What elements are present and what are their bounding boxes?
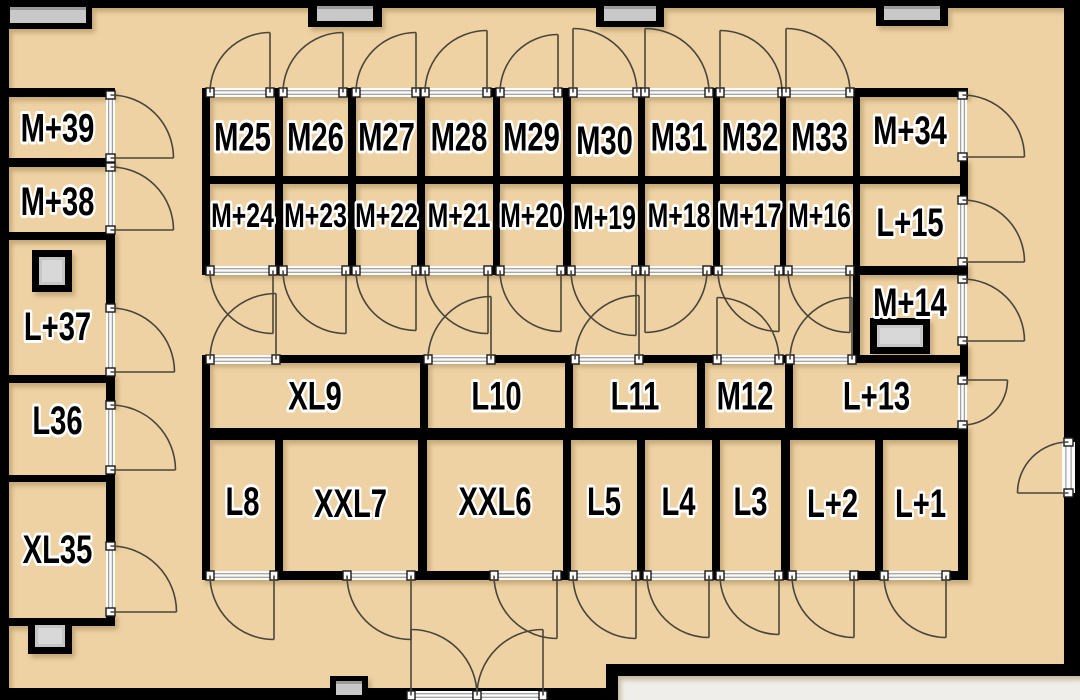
wall [781,440,790,580]
unit-label-text: L5 [587,480,621,525]
door-threshold [210,88,270,97]
wall [638,88,645,275]
wall [9,88,115,97]
unit-label-M+14: M+14 [873,281,947,326]
unit-label-L+15: L+15 [876,201,943,246]
unit-label-text: M+23 [284,197,347,235]
unit-label-M32: M32 [722,115,779,160]
unit-label-M27: M27 [358,115,415,160]
unit-label-M29: M29 [503,115,560,160]
wall [420,363,428,430]
door-threshold [425,266,488,275]
door-threshold [106,546,115,612]
wall [493,88,500,275]
wall [418,440,427,580]
unit-label-text: M31 [651,115,708,160]
unit-label-text: XXL6 [459,480,532,525]
unit-label-XXL7: XXL7 [314,482,387,527]
window-glass-edge [884,6,940,9]
wall [713,88,720,275]
floorplan: M25M26M27M28M29M30M31M32M33M+34M+24M+23M… [0,0,1080,700]
door-threshold [500,266,561,275]
unit-label-text: M+16 [788,197,851,235]
unit-label-M26: M26 [287,115,344,160]
wall [9,158,115,167]
unit-label-text: M+22 [355,197,418,235]
unit-label-text: M+19 [573,199,636,237]
unit-label-L+1: L+1 [895,482,946,527]
unit-label-text: L+2 [807,482,858,527]
unit-label-L4: L4 [661,480,696,525]
unit-label-M+24: M+24 [211,197,274,235]
door-threshold [718,266,779,275]
unit-label-text: M+17 [719,197,782,235]
wall [9,232,115,240]
door-threshold [411,691,477,700]
wall [565,363,573,430]
wall [853,88,860,275]
wall [606,664,1080,676]
unit-label-text: M33 [791,115,848,160]
door-threshold [356,88,416,97]
door-threshold [958,200,967,262]
unit-label-L10: L10 [471,374,521,419]
door-threshold [575,355,639,364]
door-threshold [283,88,343,97]
unit-label-text: L+1 [895,482,946,527]
unit-label-text: M+38 [21,180,95,225]
unit-label-L11: L11 [611,374,660,419]
wall [348,88,356,275]
door-threshold [720,88,782,97]
outside-areas [618,676,1080,700]
unit-label-text: XL35 [23,528,93,573]
door-threshold [1062,442,1075,493]
door-threshold [210,571,274,580]
unit-label-L5: L5 [587,480,621,525]
unit-label-text: L10 [471,374,521,419]
floorplan-svg: M25M26M27M28M29M30M31M32M33M+34M+24M+23M… [0,0,1080,700]
unit-label-L3: L3 [733,480,767,525]
unit-label-text: M+18 [648,197,711,235]
unit-label-M12: M12 [717,374,774,419]
door-threshold [477,691,543,700]
door-threshold [792,571,854,580]
unit-label-text: M+14 [873,281,947,326]
unit-label-M+20: M+20 [500,197,563,235]
unit-label-M31: M31 [651,115,708,160]
unit-label-M+17: M+17 [719,197,782,235]
unit-label-M25: M25 [214,115,271,160]
wall [202,440,210,580]
unit-label-M33: M33 [791,115,848,160]
wall [875,440,883,580]
unit-label-text: M26 [287,115,344,160]
door-threshold [571,266,636,275]
door-threshold [645,88,709,97]
door-threshold [717,355,779,364]
unit-label-M+22: M+22 [355,197,418,235]
unit-label-text: L8 [225,480,259,525]
unit-label-text: L+13 [843,374,910,419]
unit-label-text: L36 [32,399,82,444]
door-threshold [958,95,967,157]
door-threshold [106,405,115,470]
door-threshold [106,95,115,158]
unit-label-text: XL9 [288,374,342,419]
unit-label-M+34: M+34 [873,109,947,154]
wall [9,375,115,383]
unit-label-text: L3 [733,480,767,525]
door-threshold [283,266,346,275]
wall [202,428,968,440]
window-glass-edge [336,681,362,684]
unit-label-text: M+21 [428,197,491,235]
wall [275,88,283,275]
door-threshold [210,355,276,364]
door-threshold [106,308,115,372]
unit-label-text: M+20 [500,197,563,235]
wall [780,88,786,275]
unit-label-text: M30 [576,119,633,164]
door-threshold [425,88,487,97]
door-threshold [347,571,411,580]
wall [853,275,860,363]
window-glass-edge [604,6,656,9]
unit-label-M+38: M+38 [21,180,95,225]
unit-label-text: XXL7 [314,482,387,527]
door-threshold [210,266,273,275]
window-top-3 [596,0,664,27]
door-threshold [428,355,491,364]
door-threshold [106,167,115,230]
wall [106,230,115,308]
unit-label-text: M28 [431,115,488,160]
unit-label-L+13: L+13 [843,374,910,419]
unit-label-XL9: XL9 [288,374,342,419]
pillar-L37 [32,250,72,292]
wall [1064,0,1080,672]
pillar-highlight [880,328,920,344]
unit-label-M+16: M+16 [788,197,851,235]
unit-label-text: M+34 [873,109,947,154]
door-threshold [645,266,707,275]
pillar-highlight [42,260,62,282]
unit-label-text: M+39 [21,106,95,151]
unit-label-M+23: M+23 [284,197,347,235]
wall [712,440,720,580]
window-bottom-1 [330,676,368,700]
unit-label-text: M12 [717,374,774,419]
door-threshold [573,88,637,97]
unit-label-text: L+15 [876,201,943,246]
unit-label-XL35: XL35 [23,528,93,573]
unit-label-text: M+24 [211,197,274,235]
door-threshold [884,571,946,580]
unit-label-text: M25 [214,115,271,160]
wall [958,436,968,580]
wall [563,440,571,580]
unit-label-text: M27 [358,115,415,160]
door-threshold [720,571,779,580]
door-threshold [958,380,967,425]
window-glass-edge [317,6,373,9]
outside-area [618,676,1080,700]
wall [9,475,115,482]
door-threshold [500,88,558,97]
unit-label-L36: L36 [32,399,82,444]
unit-label-M30: M30 [576,119,633,164]
door-threshold [790,355,852,364]
wall [417,88,425,275]
unit-label-M28: M28 [431,115,488,160]
window-glass-edge [10,7,86,10]
unit-label-text: L11 [611,374,660,419]
wall [0,0,9,700]
window-top-2 [308,0,382,27]
unit-label-M+39: M+39 [21,106,95,151]
wall [785,363,793,430]
door-threshold [573,571,636,580]
wall [275,440,283,580]
unit-label-text: L4 [661,480,696,525]
door-threshold [356,266,416,275]
unit-label-L+37: L+37 [24,305,91,350]
pillar-XL35 [28,618,72,654]
unit-label-text: L+37 [24,305,91,350]
unit-label-text: M29 [503,115,560,160]
window-top-4 [876,0,948,26]
unit-label-text: M32 [722,115,779,160]
wall [637,440,645,580]
pillar-highlight [38,628,62,644]
unit-label-XXL6: XXL6 [459,480,532,525]
wall [106,470,115,547]
door-threshold [647,571,709,580]
unit-label-M+19: M+19 [573,199,636,237]
wall [697,363,705,430]
door-threshold [958,279,967,341]
door-threshold [494,571,557,580]
unit-label-L8: L8 [225,480,259,525]
door-threshold [786,88,850,97]
unit-label-M+18: M+18 [648,197,711,235]
unit-label-L+2: L+2 [807,482,858,527]
door-threshold [788,266,850,275]
unit-label-M+21: M+21 [428,197,491,235]
wall [960,158,968,200]
wall [563,88,571,275]
window-top-1 [0,0,92,29]
